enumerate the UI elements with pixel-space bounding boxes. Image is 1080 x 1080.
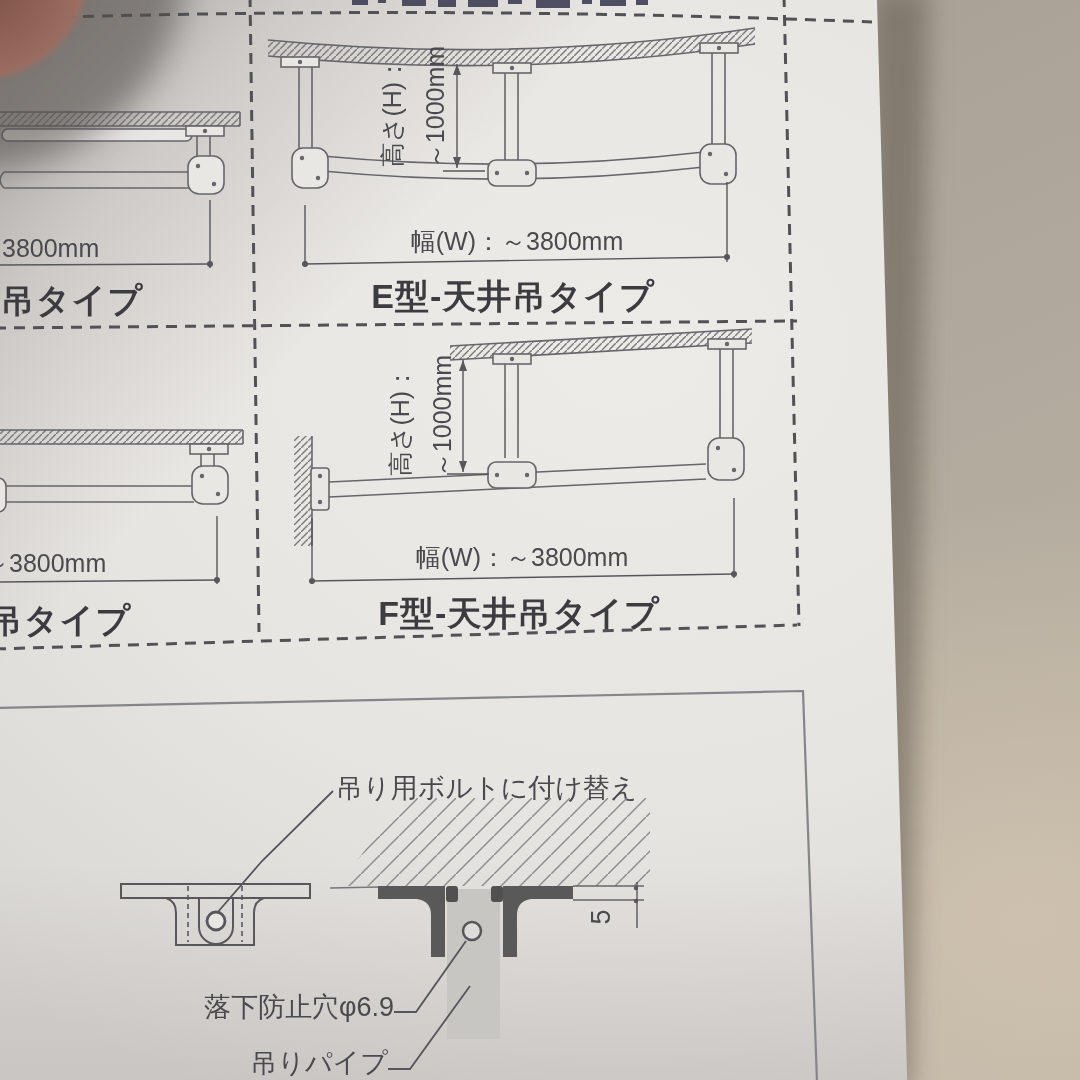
ceiling-cross-section <box>330 798 650 1069</box>
bracket-detail <box>121 884 310 945</box>
detail-box: 吊り用ボルトに付け替え <box>0 691 817 1080</box>
fall-prevention-hole-label: 落下防止穴φ6.9 <box>204 992 394 1022</box>
thickness-dimension <box>634 882 638 928</box>
e-width-label: 幅(W)：～3800mm <box>411 227 624 255</box>
e-title: E型-天井吊タイプ <box>371 277 655 315</box>
fall-prevention-hole <box>463 922 481 940</box>
f-title: F型-天井吊タイプ <box>378 594 660 632</box>
bolt-leader-line <box>217 791 333 913</box>
bracket-section-left <box>378 886 445 957</box>
e-height-value: ～1000mm <box>421 46 449 168</box>
bottom-left-title: 吊タイプ <box>0 601 131 639</box>
plate-thickness-value: 5 <box>586 909 616 924</box>
f-width-label: 幅(W)：～3800mm <box>416 543 629 571</box>
bracket-section-right <box>503 886 573 957</box>
e-height-label: 高さ(H)： <box>378 57 406 167</box>
panel-bottom-left-partial: ～3800mm 吊タイプ <box>0 430 243 639</box>
f-height-value: ～1000mm <box>428 355 456 477</box>
hanging-pipe-section <box>447 889 500 1039</box>
top-left-title: 吊タイプ <box>1 281 144 319</box>
top-left-width-label: 3800mm <box>2 234 99 262</box>
panel-f-type: 高さ(H)： ～1000mm 幅(W)：～3800mm F型-天井吊タイプ <box>294 329 752 632</box>
f-height-label: 高さ(H)： <box>386 366 414 476</box>
photo-scene: 3800mm 吊タイプ <box>0 0 1080 1080</box>
panel-e-type: 高さ(H)： ～1000mm 幅(W)：～3800mm E型-天井吊タイプ <box>268 28 755 315</box>
cutoff-heading-fragments <box>352 0 648 8</box>
hanging-pipe-label: 吊りパイプ <box>250 1048 388 1078</box>
bottom-left-width-label: ～3800mm <box>0 549 106 577</box>
